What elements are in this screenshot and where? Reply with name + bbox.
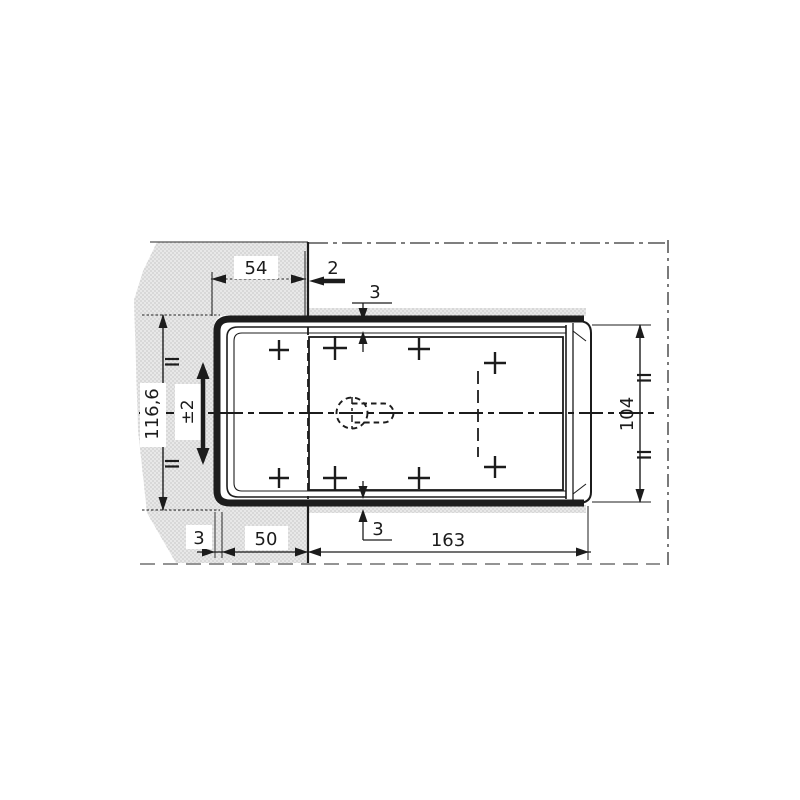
technical-drawing: 54 2 3 116,6 ±2 [0, 0, 800, 800]
technical-drawing-page: 54 2 3 116,6 ±2 [0, 0, 800, 800]
dim-50-label: 50 [255, 529, 278, 550]
dim-3-bottom-label: 3 [372, 519, 383, 540]
dim-163-label: 163 [431, 530, 465, 551]
dim-104-label: 104 [617, 397, 638, 431]
dim-2-label: 2 [327, 258, 338, 279]
dim-3-left-label: 3 [193, 528, 204, 549]
dimension-2: 2 [309, 258, 345, 286]
dim-pm2-label: ±2 [178, 399, 198, 424]
dim-54-label: 54 [245, 258, 268, 279]
gasket-seal-top [228, 308, 586, 316]
dim-116-6-label: 116,6 [142, 388, 163, 440]
dim-3-top-label: 3 [369, 282, 380, 303]
equal-marks-right [637, 375, 651, 458]
